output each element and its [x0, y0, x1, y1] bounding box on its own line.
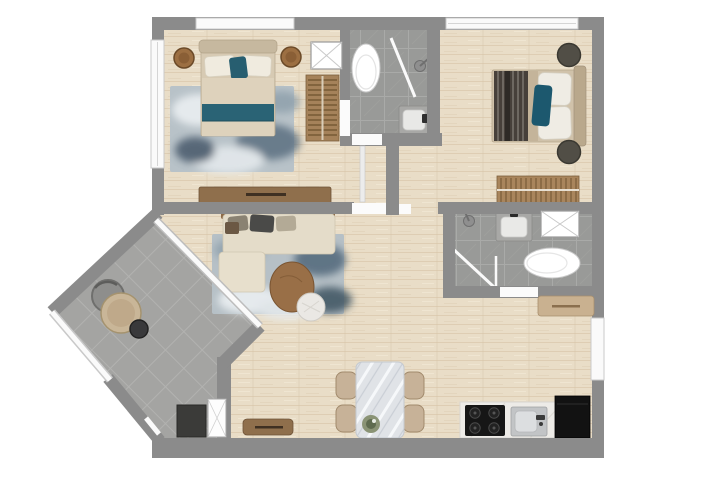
- wall-bath2-west: [443, 202, 455, 296]
- dining-chair: [336, 405, 357, 432]
- door-leaf-open: [360, 146, 365, 202]
- sideboard-bench: [243, 419, 293, 435]
- bed-1: [199, 40, 277, 136]
- nightstand-dark-top: [558, 44, 581, 67]
- cooktop: [465, 405, 505, 436]
- wall-bedroom1-south: [152, 202, 354, 214]
- dining-chair: [403, 372, 424, 399]
- door-corridor: [399, 204, 411, 214]
- floor-plan-canvas: [0, 0, 702, 493]
- balcony-side-table: [130, 320, 148, 338]
- nightstand-detail: [286, 52, 297, 63]
- door-bathroom1: [352, 134, 382, 145]
- sofa-pillow-dark: [249, 214, 274, 233]
- headboard: [199, 40, 277, 53]
- nightstand-dark-bottom: [558, 141, 581, 164]
- console-bathroom2: [538, 296, 594, 316]
- utility-box-bathroom2: [541, 211, 579, 237]
- teal-runner: [202, 104, 274, 121]
- ladder-shelf: [306, 75, 339, 141]
- entry: [177, 399, 226, 437]
- bed-2: [492, 66, 586, 146]
- wall-hall-stub: [386, 138, 399, 215]
- bathroom-1-sink: [399, 106, 429, 134]
- sofa-pillow: [276, 215, 297, 231]
- dresser: [199, 187, 331, 204]
- wall-bottom: [152, 438, 604, 458]
- teal-pillow: [229, 56, 249, 80]
- utility-box-bedroom1: [311, 42, 342, 69]
- kitchen: [460, 396, 590, 438]
- shoe-cabinet: [177, 405, 206, 437]
- wall-bath1-east: [427, 28, 440, 140]
- refrigerator: [555, 396, 590, 438]
- sofa-pillow-brown: [225, 222, 239, 234]
- wall-right: [592, 17, 604, 458]
- living-room: [212, 210, 352, 321]
- window-bedroom1-north: [196, 18, 294, 29]
- window-kitchen-east: [591, 318, 604, 380]
- kitchen-sink: [511, 407, 547, 436]
- slatted-bench: [497, 176, 579, 204]
- door-bathroom2: [500, 287, 538, 297]
- floor-plan: [0, 0, 702, 493]
- dining-chair: [336, 372, 357, 399]
- dining-chair: [403, 405, 424, 432]
- toilet: [524, 248, 580, 278]
- door-bedroom1: [352, 203, 386, 214]
- teal-pillow: [531, 84, 553, 126]
- niche-bathroom1: [340, 100, 350, 136]
- nightstand-detail: [179, 53, 190, 64]
- faucet: [536, 415, 545, 420]
- headboard: [574, 66, 586, 146]
